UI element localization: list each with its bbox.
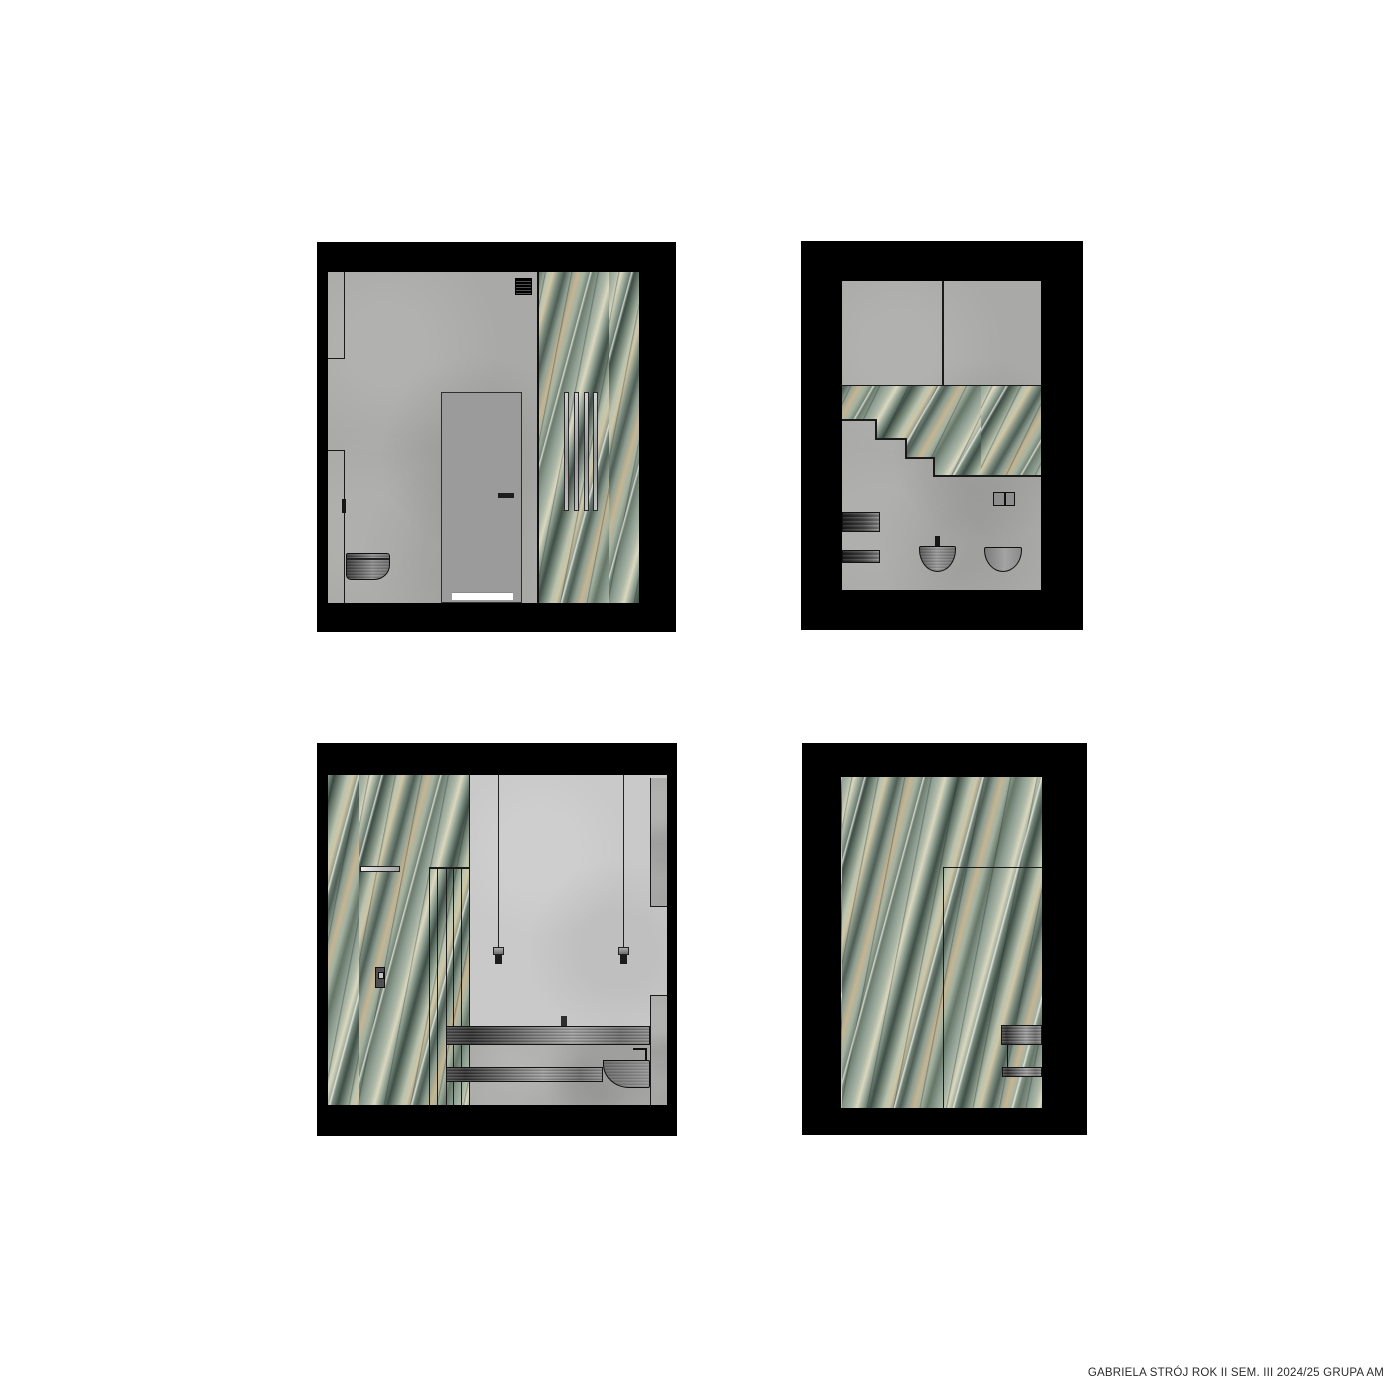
- towel-radiator: [842, 550, 880, 563]
- metal-shelf: [446, 1067, 603, 1082]
- pendant-light: [618, 947, 629, 955]
- stair-edge: [875, 438, 906, 440]
- door-handle: [498, 493, 514, 498]
- toilet-seat-line: [347, 558, 389, 560]
- panel-frame-bottom-left: [317, 743, 677, 1136]
- door: [441, 392, 522, 603]
- marble-shower-wall: [328, 775, 470, 1105]
- stair-edge: [875, 419, 877, 438]
- pendant-light: [493, 947, 504, 955]
- presentation-board: GABRIELA STRÓJ ROK II SEM. III 2024/25 G…: [0, 0, 1398, 1398]
- concrete-pilaster-lower: [650, 995, 667, 1105]
- shower-control: [375, 967, 385, 988]
- wall-socket: [993, 492, 1015, 506]
- stair-edge: [933, 475, 1041, 477]
- wall-slat: [593, 392, 598, 511]
- wall-return-lower: [328, 450, 345, 603]
- credit-text: GABRIELA STRÓJ ROK II SEM. III 2024/25 G…: [1088, 1367, 1384, 1379]
- elevation-drawing-1: [328, 272, 639, 603]
- wall-return-upper: [328, 272, 345, 359]
- panel-frame-top-right: [801, 241, 1083, 630]
- stair-edge: [933, 457, 935, 477]
- towel-radiator: [842, 512, 880, 532]
- elevation-drawing-4: [841, 777, 1042, 1108]
- vent-grille: [515, 278, 532, 295]
- shelf-support-line: [1007, 1045, 1008, 1067]
- glass-partition-mullion: [437, 867, 438, 1105]
- wall-slat: [574, 392, 579, 511]
- stair-edge: [905, 457, 935, 459]
- wall-slat: [564, 392, 569, 511]
- panel-frame-top-left: [317, 242, 676, 632]
- panel-frame-bottom-right: [802, 743, 1087, 1135]
- counter-tap: [561, 1016, 567, 1026]
- pendant-light-shade: [495, 955, 502, 964]
- shower-control-button: [378, 972, 384, 979]
- door-threshold: [452, 592, 513, 600]
- metal-shelf: [1002, 1067, 1042, 1077]
- concrete-pilaster-upper: [650, 778, 667, 907]
- flush-plate: [342, 499, 346, 513]
- pendant-light-shade: [620, 955, 627, 964]
- bidet: [919, 546, 956, 572]
- wall-joint-line: [942, 281, 944, 385]
- glass-shelf: [360, 866, 400, 872]
- glass-partition-mullion: [429, 867, 430, 1105]
- wall-slat: [584, 392, 589, 511]
- marble-stair-band: [842, 385, 1041, 477]
- metal-shelf: [1001, 1025, 1042, 1045]
- elevation-drawing-2: [842, 281, 1041, 590]
- stair-edge: [905, 438, 907, 457]
- toilet: [346, 553, 390, 580]
- basin-faucet: [633, 1048, 647, 1060]
- glass-partition-top-rail: [429, 867, 470, 869]
- vessel-basin: [984, 547, 1022, 572]
- stair-edge: [842, 419, 876, 421]
- elevation-drawing-3: [328, 775, 667, 1105]
- pendant-cord: [623, 775, 624, 947]
- pendant-cord: [498, 775, 499, 947]
- metal-counter: [446, 1026, 650, 1045]
- socket-divider-line: [1004, 493, 1006, 505]
- light-wall: [470, 775, 667, 1026]
